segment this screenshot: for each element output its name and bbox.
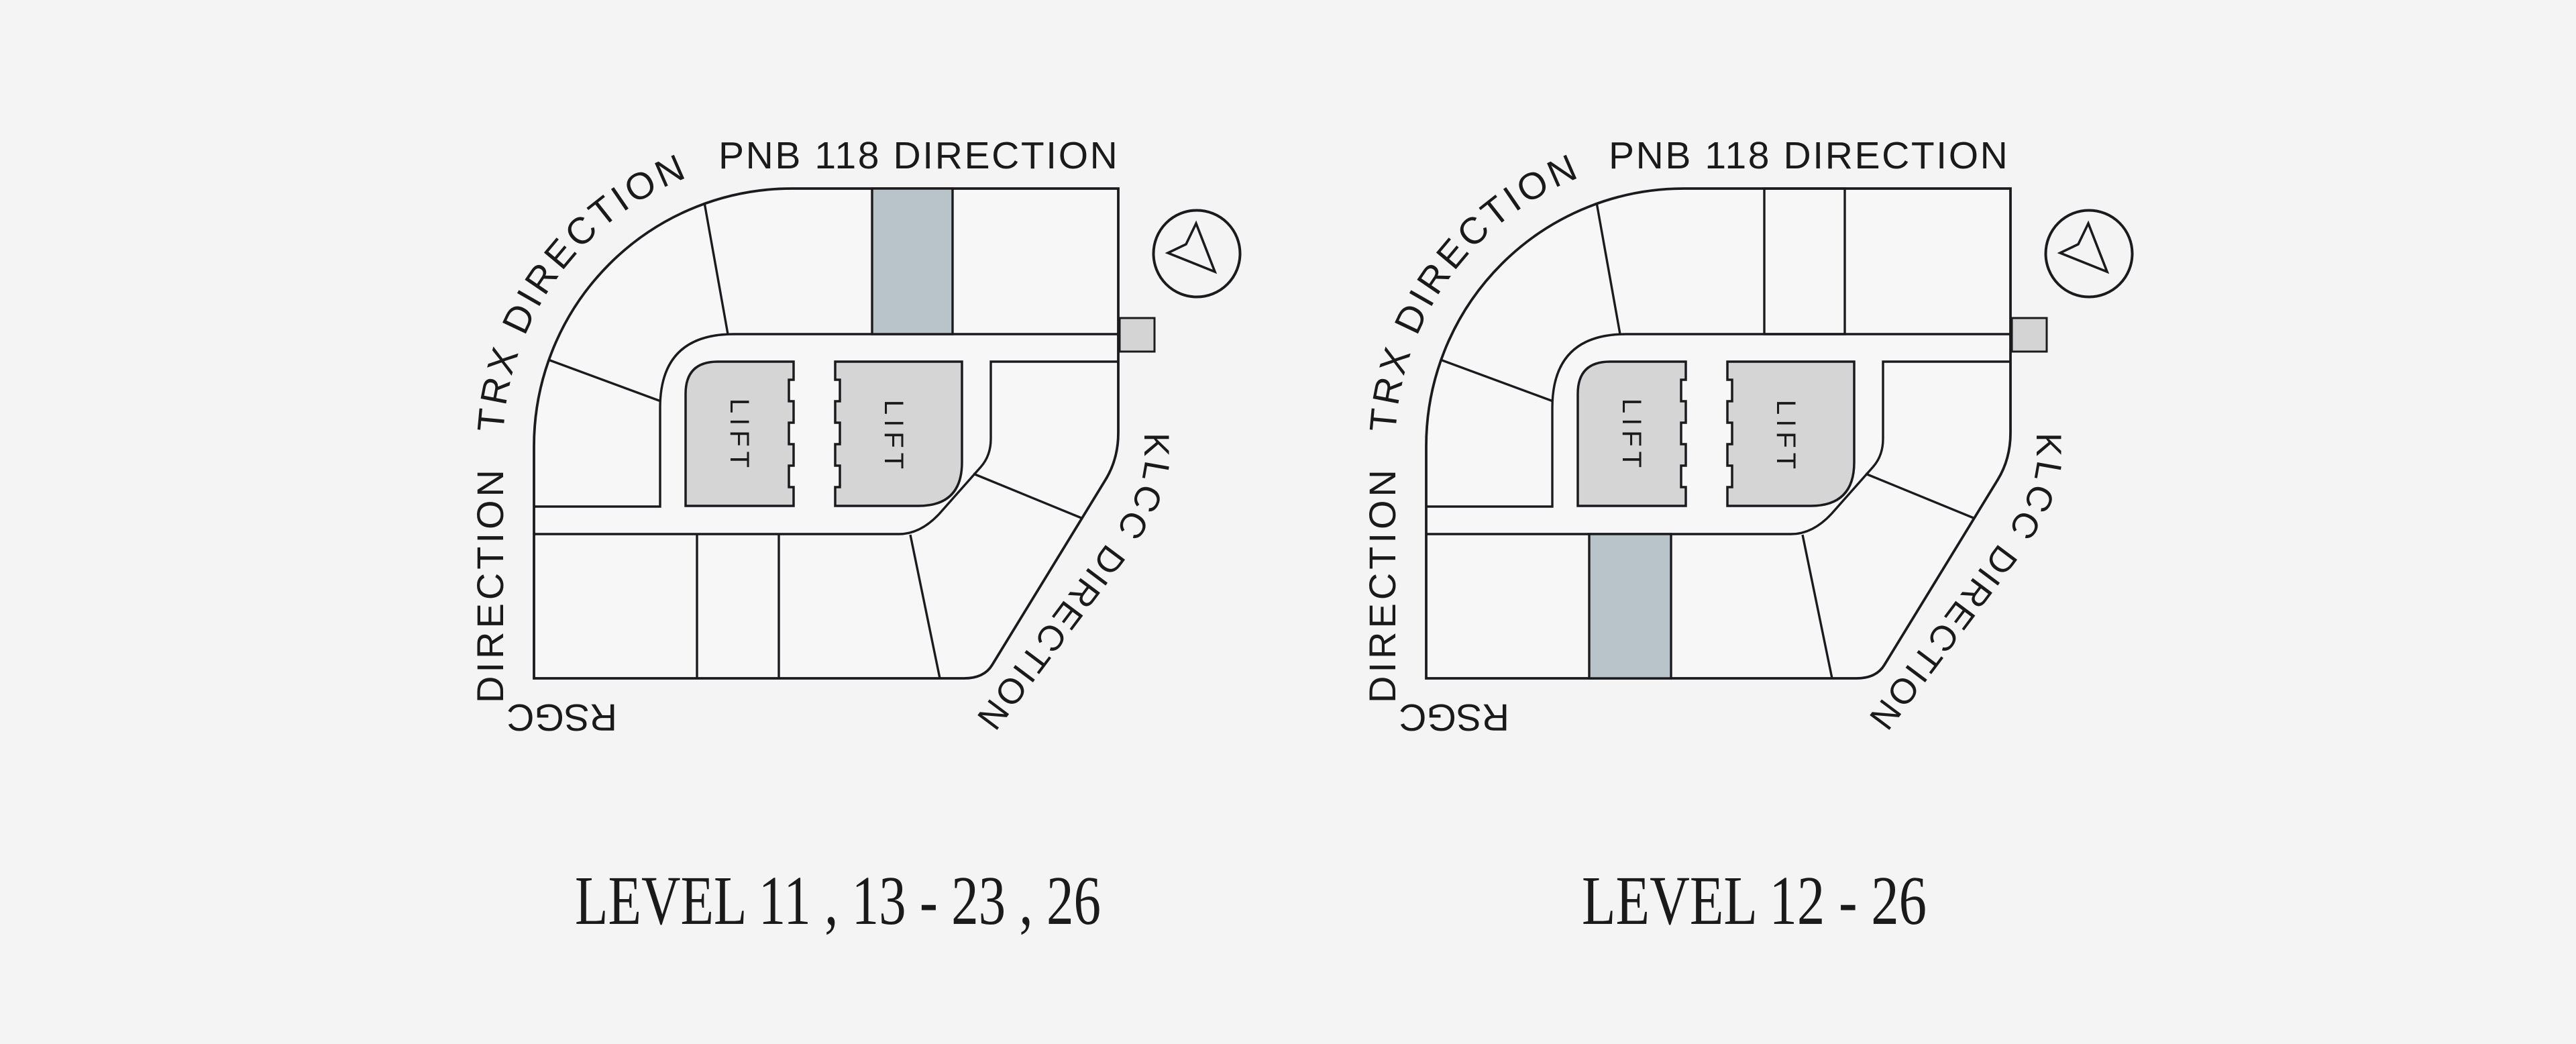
svg-text:LEVEL 11 , 13 - 23 , 26: LEVEL 11 , 13 - 23 , 26 xyxy=(575,862,1101,939)
svg-text:DIRECTION: DIRECTION xyxy=(1361,466,1403,703)
svg-text:PNB 118 DIRECTION: PNB 118 DIRECTION xyxy=(718,134,1119,177)
svg-text:LIFT: LIFT xyxy=(1617,399,1646,472)
svg-text:LIFT: LIFT xyxy=(879,400,908,474)
svg-text:DIRECTION: DIRECTION xyxy=(469,466,511,703)
svg-text:LIFT: LIFT xyxy=(724,399,754,472)
svg-text:RSGC: RSGC xyxy=(506,696,617,739)
svg-text:LEVEL 12 - 26: LEVEL 12 - 26 xyxy=(1582,862,1927,939)
svg-text:PNB 118 DIRECTION: PNB 118 DIRECTION xyxy=(1609,134,2009,177)
svg-text:RSGC: RSGC xyxy=(1399,696,1509,739)
svg-text:LIFT: LIFT xyxy=(1771,400,1801,474)
